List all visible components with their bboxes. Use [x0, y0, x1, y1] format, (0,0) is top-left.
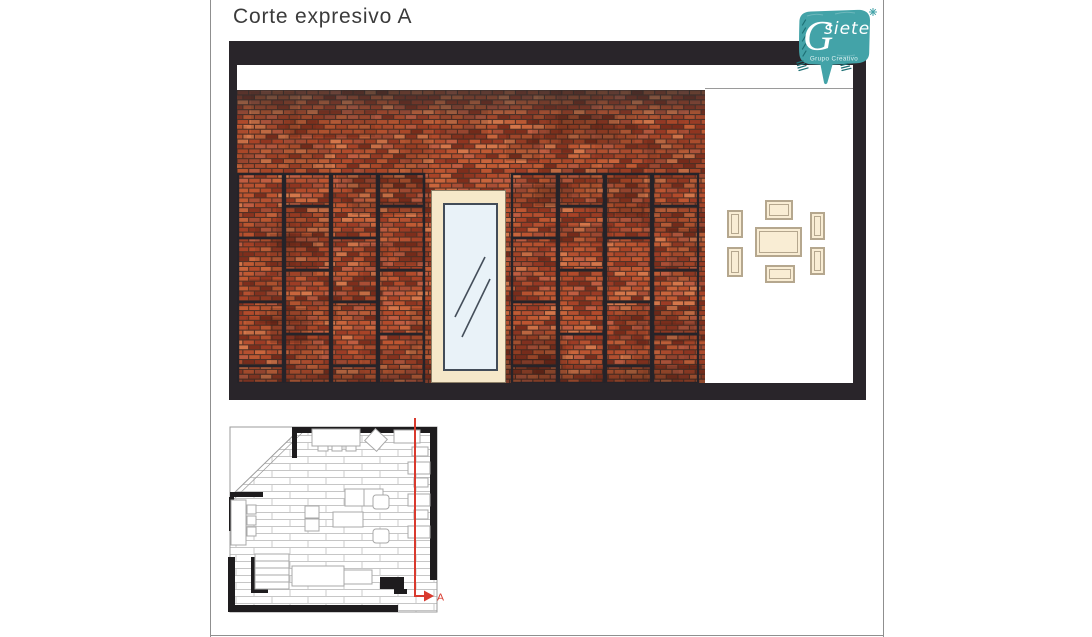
picture-frame — [755, 227, 802, 257]
sheet-border-left — [210, 0, 211, 637]
design-sheet: Corte expresivo A — [0, 0, 1092, 637]
picture-frame — [765, 265, 795, 283]
door-glass-pane — [443, 203, 498, 371]
elevation-drawing — [229, 41, 866, 400]
picture-frame — [727, 247, 743, 277]
floor-plan: A — [226, 414, 450, 620]
glass-reflection-lines — [445, 205, 496, 369]
logo-brand-text: siete — [824, 19, 870, 39]
gsiete-logo: G siete Grupo Creativo — [791, 3, 885, 98]
glass-door — [431, 190, 506, 383]
picture-frame — [810, 212, 825, 240]
sparkle-icon — [869, 8, 877, 16]
picture-frame — [810, 247, 825, 275]
picture-frame — [765, 200, 793, 220]
sheet-border-bottom — [210, 635, 884, 636]
picture-frame — [727, 210, 743, 238]
section-label: A — [437, 592, 444, 604]
logo-tagline: Grupo Creativo — [810, 56, 858, 63]
page-title: Corte expresivo A — [233, 5, 412, 29]
